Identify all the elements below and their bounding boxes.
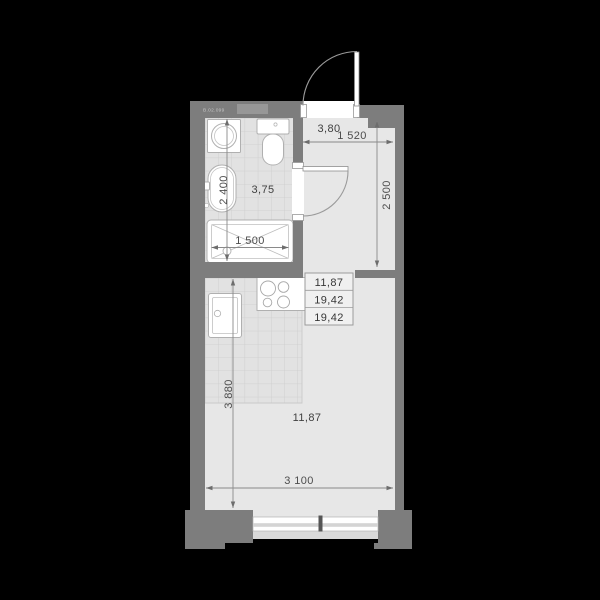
table-row-value: 11,87 <box>315 277 344 289</box>
dimension-bathroom-depth: 2 400 <box>218 175 230 205</box>
washing-machine <box>208 120 241 153</box>
vent-shaft <box>237 104 268 114</box>
unit-number-label: В.02.099 <box>203 108 225 114</box>
floor-plan-drawing: В.02.099 11,87 19,42 19,42 2 <box>0 0 600 600</box>
floor-at-window <box>253 510 378 517</box>
floor-plan-page: В.02.099 11,87 19,42 19,42 2 <box>0 0 600 600</box>
window-frame-line <box>253 523 378 527</box>
sink-drain <box>214 310 220 316</box>
window <box>253 516 378 540</box>
wall-bottom-left-pier <box>185 510 253 543</box>
bathroom-area-label: 3,75 <box>251 184 274 196</box>
area-table: 11,87 19,42 19,42 <box>305 273 353 325</box>
window-center-tick <box>319 516 323 532</box>
wall-corner-step <box>368 118 395 128</box>
wall-right <box>395 118 404 510</box>
entry-door-leaf <box>355 52 360 106</box>
flush-button <box>274 123 277 126</box>
dimension-hall-width: 1 520 <box>337 130 367 142</box>
door-jamb <box>293 163 304 169</box>
bathroom-door-leaf <box>303 167 348 172</box>
hall-area-label: 3,80 <box>317 123 340 135</box>
wall-top-right <box>357 105 404 118</box>
table-row-value: 19,42 <box>314 295 344 307</box>
door-jamb <box>354 105 360 118</box>
door-jamb <box>293 215 304 221</box>
room-area-label: 11,87 <box>293 412 322 424</box>
dimension-hall-depth: 2 500 <box>381 180 393 210</box>
kitchen-sink <box>209 294 242 338</box>
wall-bath-divider-upper <box>293 118 303 168</box>
wall-bath-divider-lower <box>293 215 303 262</box>
wall-bottom-left-step <box>185 543 225 549</box>
wall-stub <box>355 270 395 278</box>
stove <box>257 278 305 311</box>
table-row-value: 19,42 <box>314 312 344 324</box>
bathroom-door-opening <box>292 167 304 215</box>
dimension-room-depth: 3 880 <box>223 379 235 409</box>
wall-bottom-right-step <box>374 543 412 549</box>
door-jamb <box>301 105 307 118</box>
entry-door-opening <box>303 101 357 118</box>
dimension-bathtub-length: 1 500 <box>235 235 265 247</box>
dimension-room-width: 3 100 <box>284 475 314 487</box>
wall-bottom-right-pier <box>378 510 412 543</box>
wall-left <box>190 118 205 510</box>
wall-below-bathroom <box>190 262 303 278</box>
window-sill <box>253 531 378 539</box>
